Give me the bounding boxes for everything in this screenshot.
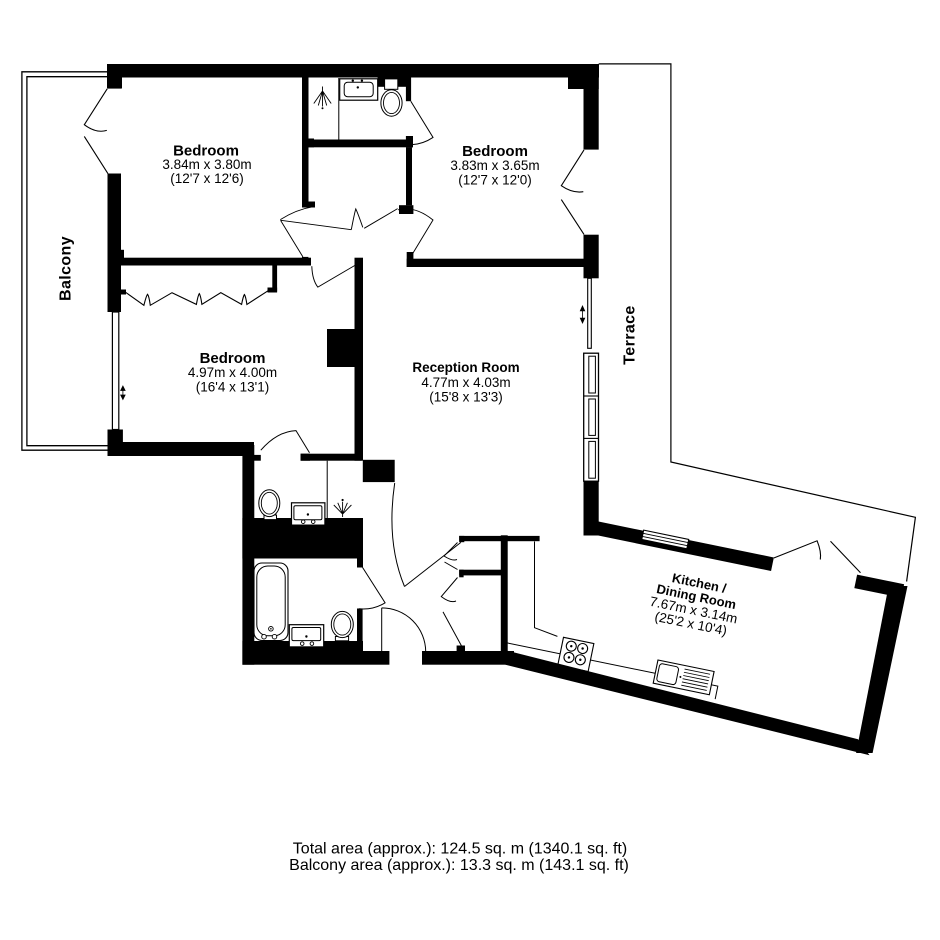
- svg-text:4.77m x 4.03m: 4.77m x 4.03m: [421, 375, 510, 390]
- svg-text:(16'4 x 13'1): (16'4 x 13'1): [196, 379, 269, 394]
- svg-text:Terrace: Terrace: [622, 305, 639, 364]
- svg-text:(12'7 x 12'0): (12'7 x 12'0): [458, 172, 531, 187]
- svg-text:Reception Room: Reception Room: [412, 360, 519, 375]
- svg-text:Balcony: Balcony: [58, 236, 75, 301]
- svg-text:Total area (approx.): 124.5 sq: Total area (approx.): 124.5 sq. m (1340.…: [293, 841, 627, 858]
- svg-text:3.83m x 3.65m: 3.83m x 3.65m: [450, 158, 539, 173]
- svg-text:(15'8 x 13'3): (15'8 x 13'3): [429, 390, 502, 405]
- svg-text:4.97m x 4.00m: 4.97m x 4.00m: [188, 365, 277, 380]
- svg-text:(12'7 x 12'6): (12'7 x 12'6): [170, 171, 243, 186]
- svg-text:Balcony area (approx.): 13.3 s: Balcony area (approx.): 13.3 sq. m (143.…: [289, 857, 629, 874]
- svg-text:3.84m x 3.80m: 3.84m x 3.80m: [162, 157, 251, 172]
